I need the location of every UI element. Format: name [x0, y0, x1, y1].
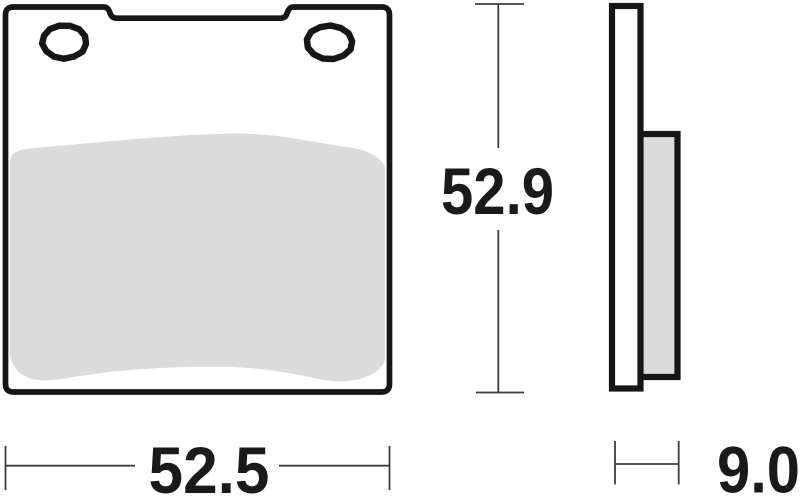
svg-text:52.5: 52.5: [149, 433, 270, 494]
svg-text:9.0: 9.0: [717, 433, 800, 495]
svg-text:52.9: 52.9: [441, 154, 554, 228]
